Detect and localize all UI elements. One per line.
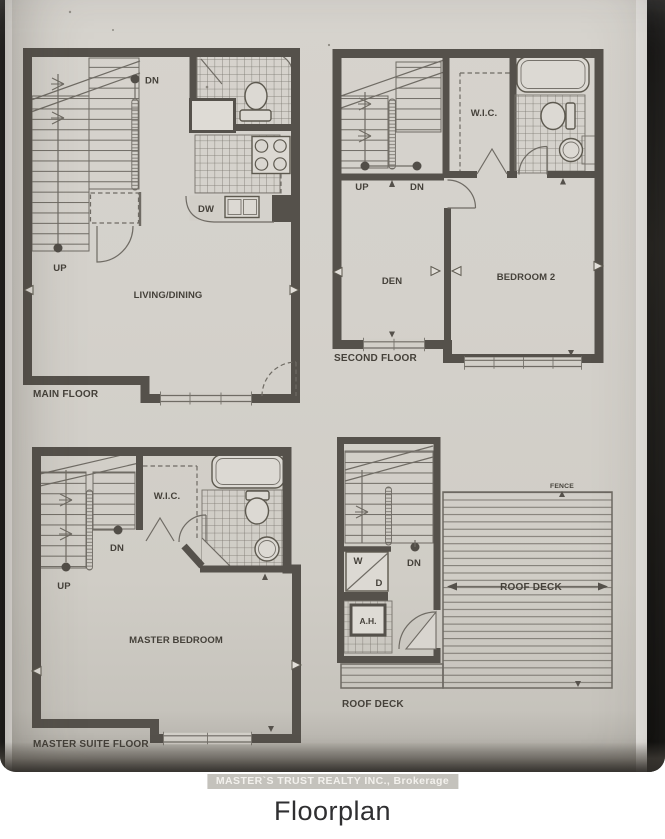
label-dw: DW: [198, 204, 214, 215]
label-up: UP: [355, 182, 369, 193]
master-wic: [143, 466, 197, 541]
bedroom2-window: [464, 350, 582, 370]
floorplan-drawing: LIVING/DINING MAIN FLOOR UP DN DW: [0, 0, 665, 772]
floorplan-page: LIVING/DINING MAIN FLOOR UP DN DW: [0, 0, 665, 839]
label-master-bedroom: MASTER BEDROOM: [129, 635, 223, 646]
plan-master-suite: W.I.C. MASTER BEDROOM MASTER SUITE FLOOR…: [32, 447, 301, 750]
den-window: [363, 332, 425, 352]
label-dryer: D: [376, 578, 383, 589]
stove: [252, 137, 290, 174]
window-marker: [452, 267, 461, 276]
label-living-dining: LIVING/DINING: [134, 290, 203, 301]
label-second-floor: SECOND FLOOR: [334, 353, 418, 364]
kitchen-sink: [225, 197, 259, 218]
plan-main-floor: LIVING/DINING MAIN FLOOR UP DN DW: [24, 48, 299, 406]
main-floor-stairs: [31, 58, 140, 262]
toilet: [246, 491, 270, 524]
label-wic: W.I.C.: [154, 491, 180, 502]
main-floor-window: [160, 392, 252, 406]
plan-roof-deck: FENCE ROOF DECK W D A.H. DN ROOF DECK: [337, 437, 612, 710]
brokerage-watermark: MASTER`S TRUST REALTY INC., Brokerage: [207, 774, 458, 789]
second-floor-bathroom: [513, 53, 599, 185]
label-roof-deck-floor: ROOF DECK: [342, 699, 404, 710]
label-up: UP: [57, 581, 71, 592]
fridge: [191, 100, 235, 132]
label-fence: FENCE: [550, 483, 574, 490]
bedroom-door-swing: [448, 180, 476, 208]
label-roof-deck: ROOF DECK: [500, 582, 562, 593]
label-bedroom2: BEDROOM 2: [497, 272, 555, 283]
second-floor-stairs: [341, 60, 444, 187]
bathroom-sink: [560, 136, 596, 164]
balcony-door-swing: [262, 362, 296, 396]
label-dn: DN: [145, 76, 159, 87]
utility-closets: [344, 549, 392, 653]
label-air-handler: A.H.: [360, 616, 377, 626]
master-stairs: [40, 451, 139, 572]
roof-deck-surface-lower: [341, 664, 443, 688]
label-washer: W: [353, 556, 362, 567]
label-dn: DN: [410, 182, 424, 193]
label-up: UP: [53, 263, 67, 274]
label-den: DEN: [382, 276, 402, 287]
label-master-suite-floor: MASTER SUITE FLOOR: [33, 739, 149, 750]
floorplan-photo[interactable]: LIVING/DINING MAIN FLOOR UP DN DW: [0, 0, 665, 772]
label-main-floor: MAIN FLOOR: [33, 389, 99, 400]
main-floor-kitchen-bath: [186, 48, 294, 222]
photo-caption: Floorplan: [0, 796, 665, 827]
plan-second-floor: W.I.C. DEN BEDROOM 2 SECOND FLOOR UP DN: [333, 53, 603, 370]
roof-door: [399, 612, 436, 649]
bathroom-sink: [255, 537, 279, 561]
master-bathroom: [179, 455, 289, 580]
label-wic: W.I.C.: [471, 108, 497, 119]
label-dn: DN: [110, 543, 124, 554]
roof-stairs: [345, 446, 433, 552]
window-marker: [431, 267, 440, 276]
bathtub: [212, 455, 284, 488]
label-dn: DN: [407, 558, 421, 569]
bathtub: [517, 57, 589, 92]
toilet: [541, 103, 575, 130]
